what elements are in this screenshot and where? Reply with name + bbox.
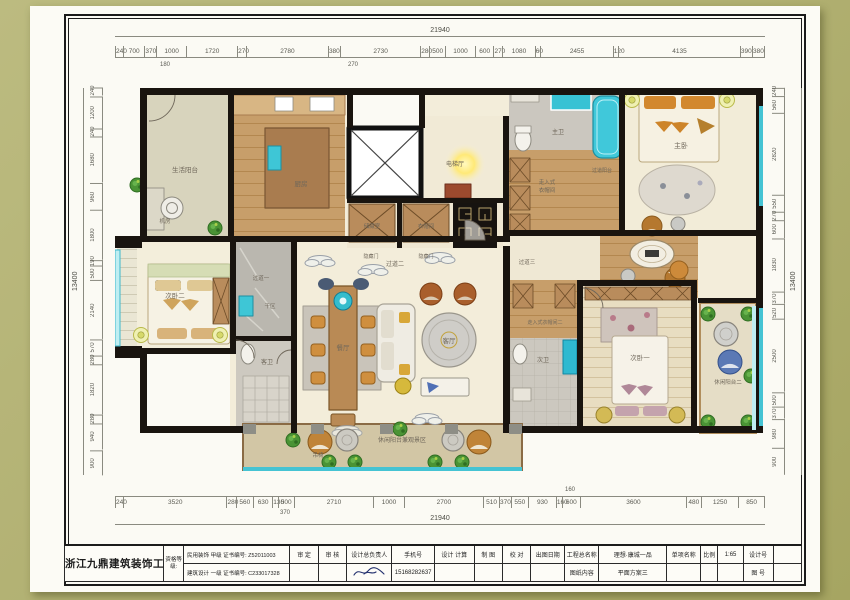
dim-value: 280: [420, 46, 429, 58]
issue-date-label: 出图日期: [531, 545, 565, 564]
label-service-balcony: 生活阳台: [172, 165, 198, 174]
dim-value: 240: [772, 88, 785, 96]
tea-table: [630, 240, 674, 268]
dim-value: 930: [528, 496, 556, 508]
floor-corridor3: [510, 236, 600, 280]
label-walkin1-line2: 衣帽间: [539, 186, 556, 194]
dim-value: 980: [772, 419, 785, 448]
dim-vertical-total-right: 13400: [790, 88, 802, 475]
dim-value: 240: [90, 88, 103, 96]
company-name: 浙江九鼎建筑装饰工程有限公司: [65, 545, 164, 582]
dim-value: 270: [772, 212, 785, 221]
dim-value: 560: [772, 96, 785, 113]
dim-value: 600: [475, 46, 493, 58]
dim-value: 1800: [90, 210, 103, 260]
dim-value: 2140: [90, 280, 103, 339]
approve-label: 审 定: [290, 545, 318, 564]
draft-label: 制 图: [474, 545, 502, 564]
label-bedroom1: 次卧一: [630, 353, 650, 362]
dim-value: 1820: [90, 364, 103, 414]
dim-value: 850: [738, 496, 765, 508]
dim-chain-left: 2401200240168096018001905002140570280182…: [90, 88, 103, 475]
dim-value: 960: [90, 183, 103, 210]
proof-label: 校 对: [502, 545, 530, 564]
master-bed: [639, 92, 719, 162]
label-cloakroom: 衣帽间: [418, 222, 435, 230]
dim-value: 240: [115, 496, 123, 508]
design-no-label: 设计号: [743, 545, 773, 564]
sofa: [377, 304, 415, 382]
dim-value: 1830: [772, 238, 785, 291]
label-corridor3: 过道三: [519, 258, 536, 266]
label-bath2: 次卫: [537, 356, 549, 364]
dim-value: 1000: [156, 46, 186, 58]
label-hidden-door-1: 隐藏门: [363, 253, 378, 260]
dim-horizontal-total-bottom: 21940: [115, 514, 765, 525]
label-walkin2: 走入式衣帽间二: [527, 319, 562, 326]
label-storage: 储藏室: [364, 222, 381, 230]
dim-value: 280: [226, 496, 235, 508]
scale-blank2: [718, 564, 744, 582]
dim-value: 370: [499, 496, 511, 508]
screenshot-root: { "sheet": { "company": "浙江九鼎建筑装饰工程有限公司"…: [0, 0, 850, 600]
dim-value: 270: [237, 46, 246, 58]
dim-value: 480: [686, 496, 701, 508]
dim-value: 3520: [123, 496, 227, 508]
dim-value: 370: [144, 46, 156, 58]
dim-value: 190: [90, 260, 103, 266]
dim-chain-top: 2407003701000172027027803802730280500100…: [115, 46, 765, 58]
chief-signature: [347, 564, 392, 582]
shower-bath2: [563, 340, 577, 374]
label-kitchen: 厨房: [295, 179, 308, 188]
item-value: [667, 564, 701, 582]
content-value: 平面方案三: [599, 564, 667, 582]
content-label: 图纸内容: [565, 564, 599, 582]
qualification-line2: 建筑设计 一级 证书编号: C233017328: [184, 564, 290, 582]
dim-value: 550: [772, 195, 785, 212]
dim-value: 1000: [373, 496, 403, 508]
issue-date-value: [531, 564, 565, 582]
dim-value: 560: [236, 496, 253, 508]
figure-no-label: 图 号: [743, 564, 773, 582]
dim-value: 900: [90, 450, 103, 475]
proof-value: [502, 564, 530, 582]
approve-value: [290, 564, 318, 582]
dim-value: 500: [429, 46, 445, 58]
project-name: 理想·康城一品: [599, 545, 667, 564]
dim-vertical-total-left: 13400: [72, 88, 84, 475]
dim-value: 2730: [340, 46, 420, 58]
dim-value: 280: [90, 415, 103, 424]
dim-value: 900: [772, 448, 785, 475]
dim-value: 2780: [246, 46, 328, 58]
qualification-line1: 民用装饰 甲级 证书编号: Z52011003: [184, 545, 290, 564]
label-dining: 餐厅: [337, 343, 351, 352]
review-value: [318, 564, 346, 582]
dim-value: 1250: [701, 496, 738, 508]
dim-value: 520: [772, 304, 785, 320]
dry-area-sink: [239, 296, 253, 316]
phone-value: 15168282637: [392, 564, 435, 582]
toilet-guest: [241, 344, 255, 364]
dim-value: 2455: [540, 46, 612, 58]
label-corridor2: 过道二: [386, 260, 404, 268]
dim-value: 390: [740, 46, 752, 58]
dim-value: 370: [772, 292, 785, 304]
dim-value: 500: [772, 392, 785, 407]
dim-value: 570: [90, 339, 103, 355]
dim-value: 240: [115, 46, 123, 58]
bedroom-rug: [639, 165, 715, 215]
dim-value: 700: [123, 46, 144, 58]
chief-designer-label: 设计总负责人: [347, 545, 392, 564]
project-label: 工程总名称: [565, 545, 599, 564]
label-elevator-hall: 电梯厅: [446, 160, 464, 168]
dim-sub: 180: [160, 62, 170, 68]
floor-plan: 生活阳台 机房 厨房 电梯厅 储藏室 衣帽间 隐藏门 隐藏门 过道二 过道一 干…: [115, 88, 765, 475]
dim-value: 2700: [404, 496, 484, 508]
dim-value: 2820: [772, 113, 785, 195]
design-no-value: [773, 545, 801, 564]
title-block: 浙江九鼎建筑装饰工程有限公司 资格等级: 民用装饰 甲级 证书编号: Z5201…: [64, 544, 802, 582]
washing-machine: [161, 197, 183, 219]
dim-value: 4135: [618, 46, 739, 58]
label-view-balcony: 休闲阳台兼观景区: [378, 436, 426, 444]
dim-value: 550: [511, 496, 528, 508]
review-label: 审 核: [318, 545, 346, 564]
label-master-bedroom: 主卧: [674, 141, 688, 150]
dim-value: 3600: [580, 496, 686, 508]
label-hidden-door-2: 隐藏门: [418, 253, 433, 260]
dim-value: 370: [772, 407, 785, 419]
dim-sub: 160: [565, 487, 575, 493]
drawing-sheet: 21940 2407003701000172027027803802730280…: [30, 6, 820, 592]
scale-label: 比例: [701, 545, 718, 564]
label-bedroom2: 次卧二: [165, 291, 185, 300]
figure-no-value: [773, 564, 801, 582]
dim-value: 270: [493, 46, 502, 58]
dim-value: 1680: [90, 136, 103, 182]
label-guest-bath: 客卫: [261, 358, 273, 366]
design-calc-value: [434, 564, 474, 582]
dim-value: 940: [90, 423, 103, 449]
label-dry-area: 干区: [264, 303, 276, 310]
toilet-bath2: [513, 344, 527, 364]
item-label: 单项名称: [667, 545, 701, 564]
signature: [352, 566, 386, 578]
label-leisure-balcony2: 休闲阳台二: [714, 378, 742, 386]
dim-value: 1080: [502, 46, 534, 58]
label-corridor1: 过道一: [253, 274, 270, 282]
dim-value: 500: [278, 496, 294, 508]
dim-horizontal-total-top: 21940: [115, 26, 765, 37]
qualification-label: 资格等级:: [164, 545, 184, 582]
dim-value: 510: [483, 496, 499, 508]
label-master-bath: 主卫: [552, 128, 564, 136]
dim-value: 600: [772, 220, 785, 238]
draft-value: [474, 564, 502, 582]
dim-value: 1720: [186, 46, 237, 58]
kitchen-sink: [268, 146, 281, 170]
dim-value: 1200: [90, 96, 103, 129]
dim-value: 380: [328, 46, 340, 58]
dim-chain-bottom: 2403520280560630130500271010002700510370…: [115, 496, 765, 508]
elevator-shaft: [349, 128, 421, 198]
dim-value: 2500: [772, 319, 785, 392]
dim-sub: 270: [348, 62, 358, 68]
scale-blank: [701, 564, 718, 582]
dim-value: 600: [562, 496, 580, 508]
scale-value: 1:65: [718, 545, 744, 564]
dim-chain-right: 2405602820550270600183037052025005003709…: [772, 88, 785, 475]
label-machine-room: 机房: [159, 217, 171, 225]
door-mat: [445, 184, 471, 198]
label-living: 客厅: [443, 336, 457, 345]
dim-value: 2710: [294, 496, 374, 508]
dim-value: 380: [752, 46, 765, 58]
label-corridor-balcony: 过道阳台: [592, 167, 612, 174]
bed1: [612, 336, 668, 416]
label-walkin1-line1: 走入式: [539, 178, 556, 186]
phone-label: 手机号: [392, 545, 435, 564]
dim-value: 630: [253, 496, 272, 508]
label-hanging-chair: 吊椅: [312, 451, 324, 459]
design-calc-label: 设计 计算: [434, 545, 474, 564]
dim-value: 1000: [445, 46, 475, 58]
dim-value: 500: [90, 266, 103, 281]
